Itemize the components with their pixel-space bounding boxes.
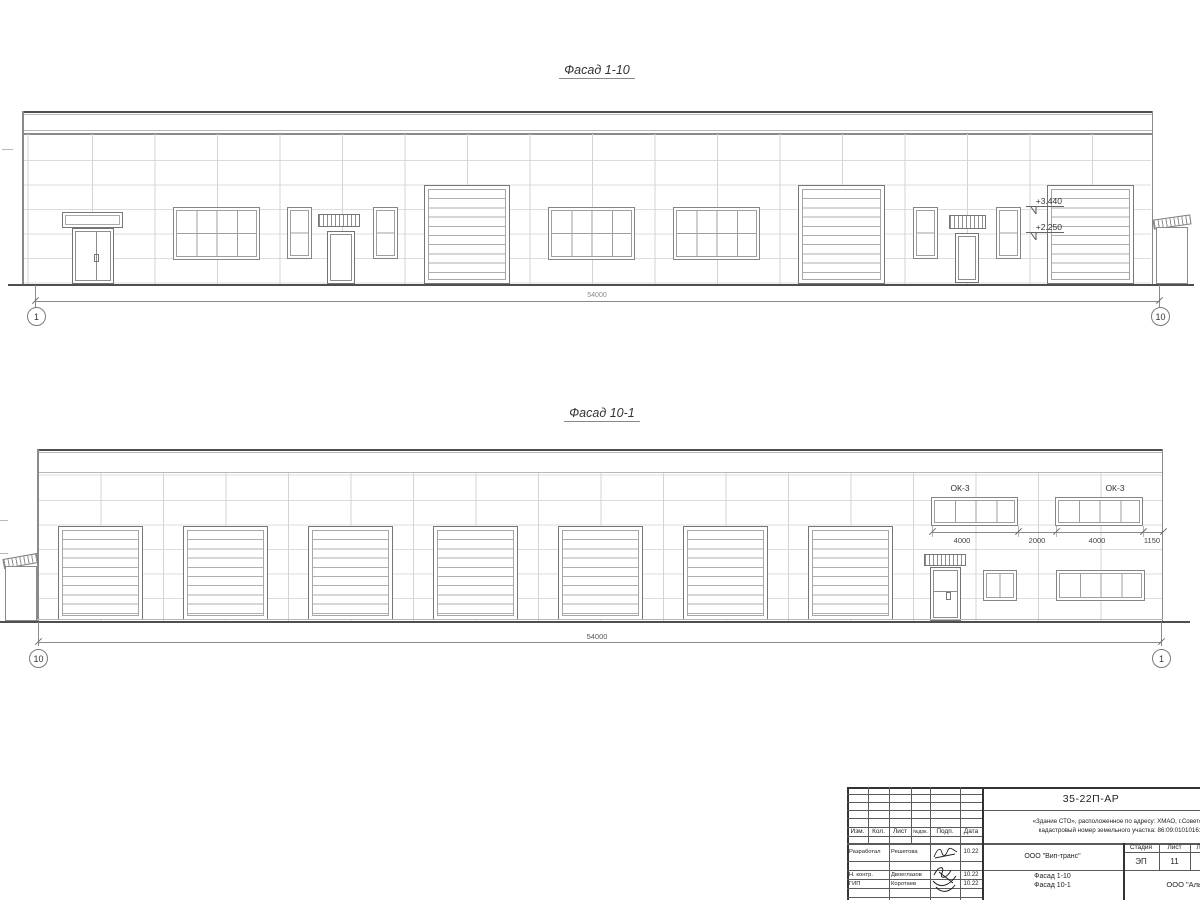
tb-date-developer: 10.22 [960, 843, 982, 861]
tb-line [847, 861, 982, 862]
window-4x2-c-panes [676, 210, 757, 257]
gate-6 [683, 526, 768, 620]
axis-bubble-10-b: 10 [29, 649, 48, 668]
facade2-top-line [37, 449, 1163, 451]
facade2-ground-line [0, 621, 1190, 623]
sectional-gate-2-slats [802, 189, 881, 280]
leanto-right-body [1156, 227, 1188, 284]
gate-5 [558, 526, 643, 620]
tb-stage-label: Стадия [1123, 843, 1159, 852]
facade2-door [930, 567, 961, 621]
window-1x2-c-panes [916, 210, 935, 256]
gate-7 [808, 526, 893, 620]
facade2-top-inner-line [37, 452, 1163, 453]
window-4x2-a-panes [176, 210, 257, 257]
tb-name-developer: Решетова [891, 843, 930, 861]
door-canopy-hatched-2 [949, 215, 986, 229]
axis-bubble-10: 10 [1151, 307, 1170, 326]
elevation-arrow-upper [1030, 206, 1040, 215]
tb-line [889, 787, 890, 900]
gate-3-slats [312, 530, 389, 616]
ok3-window-2-panes [1058, 500, 1140, 523]
tb-role-ncontrol: Н. контр. [849, 870, 889, 879]
leanto-left-body [5, 566, 37, 621]
tb-subject-line1: Фасад 1-10 [1034, 872, 1071, 881]
dim-4000-b: 4000 [1089, 536, 1106, 545]
facade1-ground-line [8, 284, 1194, 286]
ok3-window-1 [931, 497, 1018, 526]
tb-line [847, 888, 982, 889]
facade-10-1-title-text: Фасад 10-1 [564, 406, 640, 422]
facade2-right-edge [1162, 449, 1164, 622]
gate-4 [433, 526, 518, 620]
tb-subject-line2: Фасад 10-1 [1034, 881, 1071, 890]
facade-1-10-title: Фасад 1-10 [487, 63, 707, 79]
facade-1-10-title-text: Фасад 1-10 [559, 63, 635, 79]
window-4x2-c [673, 207, 760, 260]
window-1x2-b-panes [376, 210, 395, 256]
dim-2000: 2000 [1029, 536, 1046, 545]
ok3-label-1: ОК-3 [950, 483, 969, 493]
gate-4-slats [437, 530, 514, 616]
facade1-total-dim: 54000 [587, 292, 606, 299]
tb-sheet-value: 11 [1159, 852, 1190, 870]
tb-company: ООО "Альянс" [1123, 870, 1200, 898]
window-1x2-d [996, 207, 1021, 259]
facade1-axis-leader-right [1159, 285, 1160, 308]
sectional-gate-1-slats [428, 189, 506, 280]
tb-project-line1: «Здание СТО», расположенное по адресу: Х… [1033, 818, 1200, 827]
tb-col-list: Лист [889, 827, 911, 836]
tb-project-description: «Здание СТО», расположенное по адресу: Х… [984, 810, 1200, 843]
tb-name-ncontrol: Двоеглазов [891, 870, 930, 879]
axis-bubble-1-b: 1 [1152, 649, 1171, 668]
entrance-door-1-leaf [75, 231, 111, 281]
facade2-door-leaf [933, 570, 958, 618]
tb-role-gip: ГИП [849, 879, 889, 888]
facade2-edge-mark-2 [0, 553, 8, 554]
gate-1-slats [62, 530, 139, 616]
tb-subject: Фасад 1-10 Фасад 10-1 [982, 872, 1123, 900]
door-handle [946, 592, 951, 600]
entrance-door-1 [72, 228, 114, 284]
side-door-1-leaf [330, 234, 352, 281]
window-1x2-a [287, 207, 312, 259]
window-1x2-c [913, 207, 938, 259]
tb-date-gip: 10.22 [960, 879, 982, 888]
fascia-trim-line-1 [22, 130, 1153, 131]
signature-ncontrol-gip [929, 863, 961, 893]
gate-2 [183, 526, 268, 620]
signature-developer [931, 844, 960, 861]
tb-col-izm: Изм. [847, 827, 868, 836]
drawing-sheet: Фасад 1-10 +3.440 +2.250 54000 1 10 Фаса… [0, 0, 1200, 900]
elevation-arrow-lower [1030, 232, 1040, 241]
small-window-2x1-panes [986, 573, 1014, 598]
window-1x2-d-panes [999, 210, 1018, 256]
tb-sheets-label: Листов [1190, 843, 1200, 852]
side-door-1 [327, 231, 355, 284]
ribbon-window-4x1 [1056, 570, 1145, 601]
facade1-right-edge [1152, 111, 1154, 285]
parapet-cap-line [22, 111, 1153, 113]
tb-project-line2: кадастровый номер земельного участка: 86… [1039, 827, 1200, 836]
axis-bubble-1: 1 [27, 307, 46, 326]
entrance-canopy-inner [65, 215, 120, 225]
facade2-base-line [37, 619, 1163, 620]
ok3-dim-line [932, 532, 1163, 533]
tb-col-kol: Кол. [868, 827, 889, 836]
facade2-edge-mark-1 [0, 520, 8, 521]
tb-client: ООО "Вип-транс" [982, 843, 1123, 870]
facade2-total-dim: 54000 [587, 632, 608, 641]
facade-10-1-title: Фасад 10-1 [492, 406, 712, 422]
parapet-inner-line [22, 114, 1153, 115]
ok3-label-2: ОК-3 [1105, 483, 1124, 493]
facade1-axis-leader-left [35, 285, 36, 308]
gate-6-slats [687, 530, 764, 616]
tb-date-ncontrol: 10.22 [960, 870, 982, 879]
door-canopy-hatched-1 [318, 214, 360, 227]
gate-5-slats [562, 530, 639, 616]
ok3-window-1-panes [934, 500, 1015, 523]
side-door-2-leaf [958, 236, 976, 280]
title-block: Изм. Кол. Лист №док. Подп. Дата Разработ… [847, 787, 1200, 900]
window-4x2-b-panes [551, 210, 632, 257]
tb-col-ndok: №док. [911, 827, 930, 836]
facade2-door-canopy [924, 554, 966, 566]
window-1x2-a-panes [290, 210, 309, 256]
tb-name-gip: Коротаев [891, 879, 930, 888]
tb-line [847, 897, 982, 898]
door-handle [94, 254, 99, 262]
sectional-gate-2 [798, 185, 885, 284]
tb-col-data: Дата [960, 827, 982, 836]
dim-4000-a: 4000 [954, 536, 971, 545]
ribbon-window-4x1-panes [1059, 573, 1142, 598]
tb-doc-number: 35-22П-АР [982, 787, 1200, 810]
gate-1 [58, 526, 143, 620]
gate-2-slats [187, 530, 264, 616]
tb-stage-value: ЭП [1123, 852, 1159, 870]
side-door-2 [955, 233, 979, 283]
tb-role-developer: Разработал [849, 843, 889, 861]
facade1-edge-mark [2, 149, 13, 150]
sectional-gate-1 [424, 185, 510, 284]
window-4x2-b [548, 207, 635, 260]
window-1x2-b [373, 207, 398, 259]
facade1-dim-line [35, 301, 1159, 302]
dim-1150: 1150 [1144, 536, 1160, 545]
gate-7-slats [812, 530, 889, 616]
tb-col-podp: Подп. [930, 827, 960, 836]
tb-sheet-label: Лист [1159, 843, 1190, 852]
small-window-2x1 [983, 570, 1017, 601]
window-4x2-a [173, 207, 260, 260]
entrance-canopy-flat [62, 212, 123, 228]
ok3-window-2 [1055, 497, 1143, 526]
facade2-dim-line [38, 642, 1161, 643]
gate-3 [308, 526, 393, 620]
